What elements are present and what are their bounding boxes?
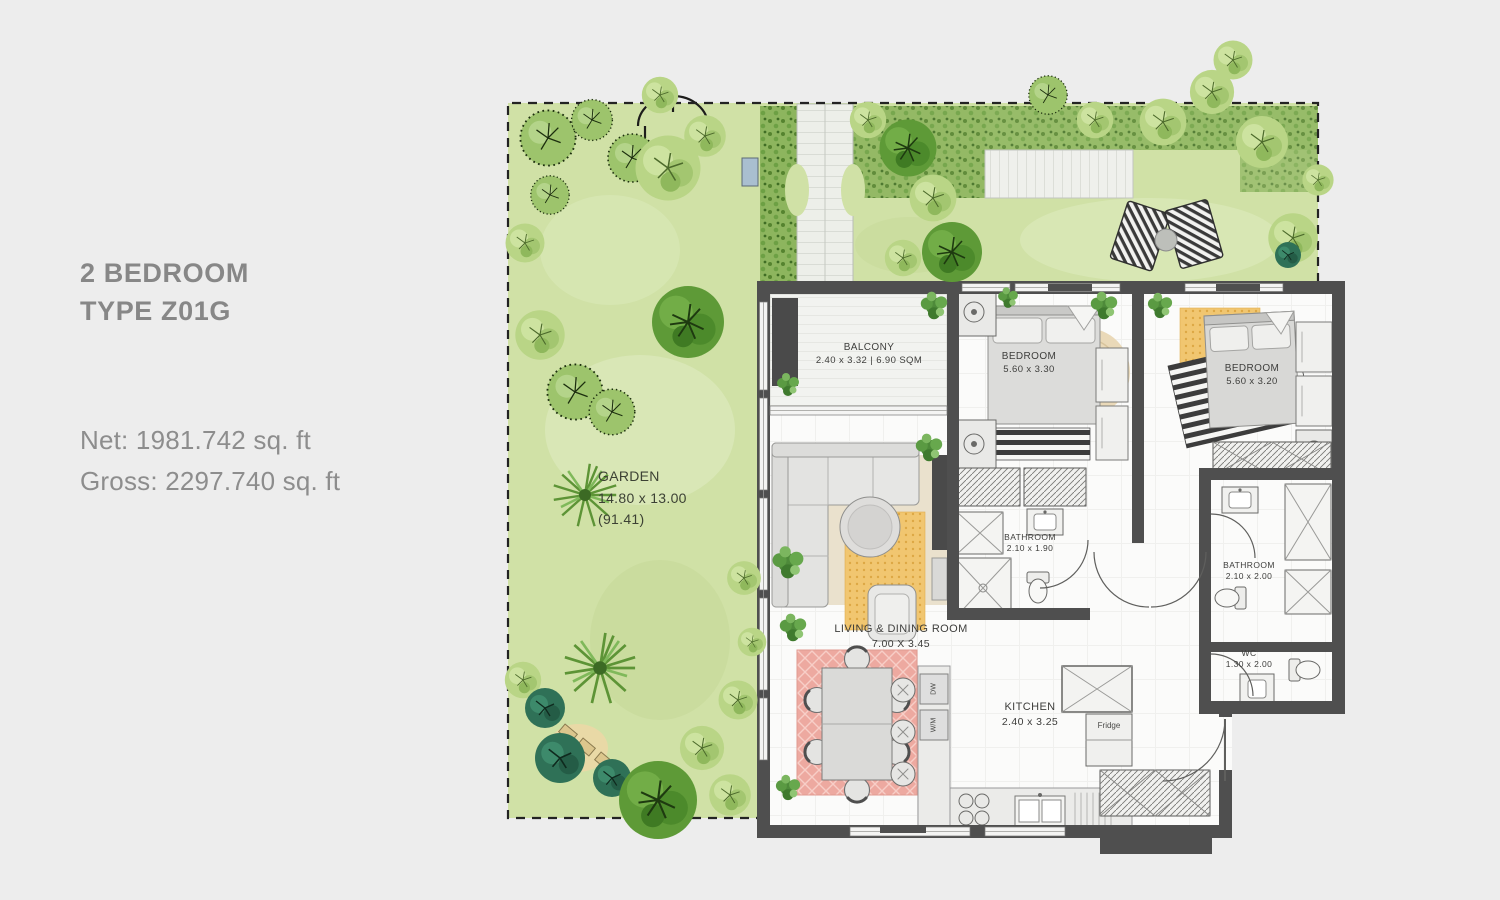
wall-entry-stub	[1100, 838, 1212, 854]
garden-area-value: (91.41)	[598, 509, 687, 531]
water-feature	[742, 158, 758, 186]
wall-corridor	[1132, 281, 1144, 543]
kitchen-label: KITCHEN 2.40 x 3.25	[1002, 700, 1058, 729]
entry-closet	[1100, 770, 1210, 816]
living-dining-label: LIVING & DINING ROOM 7.00 X 3.45	[834, 622, 967, 651]
unit-type-line1: 2 BEDROOM	[80, 254, 249, 292]
bedroom2-furniture	[1204, 311, 1332, 476]
balcony-planter	[772, 298, 798, 386]
wall-step-top	[1219, 701, 1232, 717]
pillow	[993, 318, 1042, 343]
garden-path	[785, 104, 865, 282]
bedroom2-label: BEDROOM 5.60 x 3.20	[1225, 362, 1279, 388]
terrace-deck	[985, 150, 1133, 198]
fridge-label: Fridge	[1098, 721, 1121, 730]
unit-area-stats: Net: 1981.742 sq. ft Gross: 2297.740 sq.…	[80, 420, 340, 502]
wall-bathroom1-bottom	[947, 608, 1090, 620]
unit-type-title: 2 BEDROOM TYPE Z01G	[80, 254, 249, 330]
kitchen-sink	[1015, 793, 1065, 826]
tall-cabinet	[1062, 666, 1132, 712]
page-canvas: 2 BEDROOM TYPE Z01G Net: 1981.742 sq. ft…	[0, 0, 1500, 900]
bedroom1-label: BEDROOM 5.60 x 3.30	[1002, 350, 1056, 376]
unit-type-line2: TYPE Z01G	[80, 292, 249, 330]
bedroom1-striped-rug	[995, 428, 1090, 460]
wall-bathroom2-left	[1199, 468, 1211, 714]
bathroom1-label: BATHROOM 2.10 x 1.90	[1004, 532, 1056, 555]
tv-console	[932, 455, 947, 600]
washing-machine-label: W/M	[931, 718, 938, 732]
balcony-label: BALCONY 2.40 x 3.32 | 6.90 SQM	[816, 341, 922, 367]
bathroom2-label: BATHROOM 2.10 x 2.00	[1223, 560, 1275, 583]
bar-stools	[891, 678, 915, 786]
wall-bedroom2-bottom	[1199, 468, 1345, 480]
pillow	[1210, 326, 1249, 352]
garden-table	[1155, 229, 1177, 251]
wc-label: WC 1.30 x 2.00	[1226, 648, 1272, 671]
gross-area-label: Gross: 2297.740 sq. ft	[80, 461, 340, 502]
net-area-label: Net: 1981.742 sq. ft	[80, 420, 340, 461]
coffee-table-top	[848, 505, 892, 549]
dishwasher-label: DW	[931, 683, 938, 695]
garden-name: GARDEN	[598, 466, 687, 488]
wall-living-bedroom	[947, 281, 959, 620]
garden-dims: 14.80 x 13.00	[598, 488, 687, 510]
garden-label: GARDEN 14.80 x 13.00 (91.41)	[598, 466, 687, 531]
